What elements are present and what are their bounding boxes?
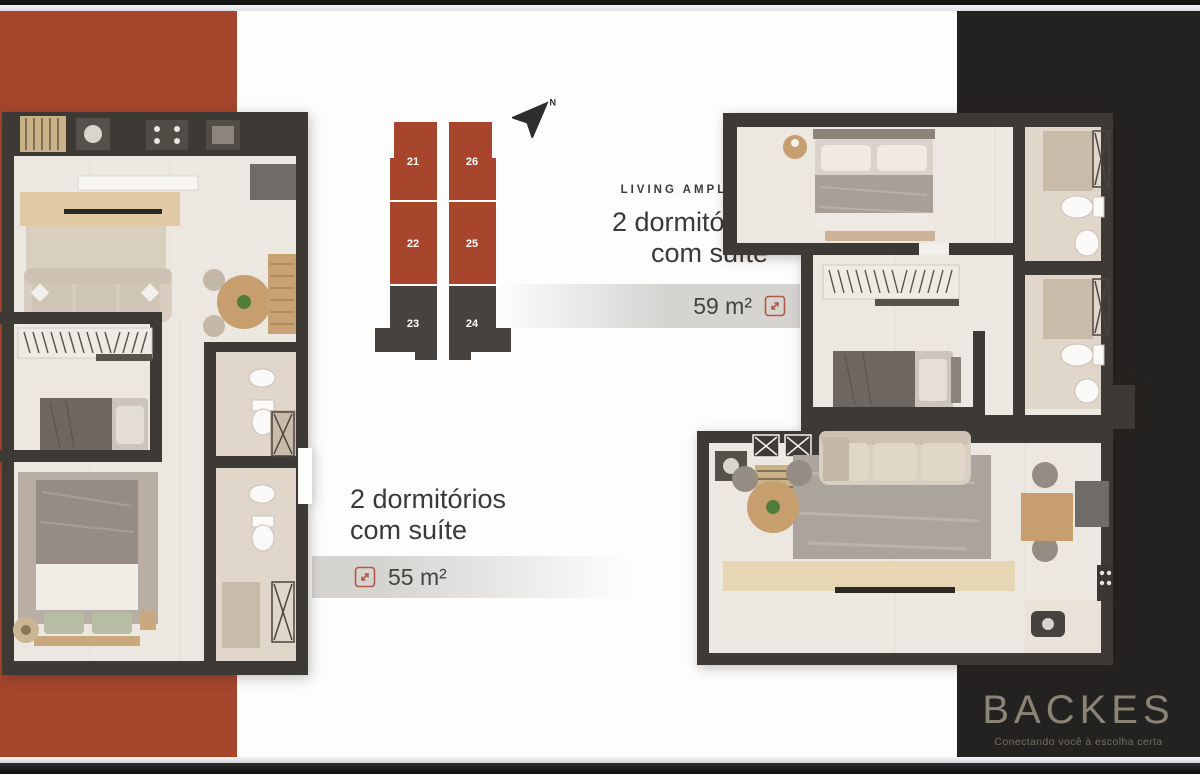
- brand-block: BACKES Conectando você à escolha certa: [957, 690, 1200, 748]
- plan55-title-line2: com suíte: [350, 515, 590, 546]
- plan55-area-bar: 55 m²: [312, 556, 657, 598]
- frame-bottom-bar: [0, 763, 1200, 774]
- floor-plan-55-svg: [0, 112, 312, 675]
- keyplan-unit-label: 23: [407, 318, 419, 330]
- plan55-bathrooms: [216, 352, 296, 661]
- plan55-bedroom2: [40, 398, 148, 452]
- brochure-canvas: 21 22 23 26 25 24 N LIVING AMPLIADO 2 do…: [0, 0, 1200, 774]
- keyplan-unit-label: 25: [466, 238, 478, 250]
- plan55-area-value: 55 m²: [388, 564, 447, 591]
- keyplan-unit-24: [449, 286, 511, 352]
- frame-top-strip: [0, 5, 1200, 11]
- plan55-master-bedroom: [13, 472, 158, 646]
- floor-plan-59-svg: [695, 113, 1135, 666]
- brand-tagline: Conectando você à escolha certa: [957, 736, 1200, 748]
- keyplan-unit-label: 26: [466, 156, 478, 168]
- plan59-bedroom2: [833, 351, 961, 409]
- plan55-title-line1: 2 dormitórios: [350, 484, 590, 515]
- brand-logo: BACKES: [957, 690, 1200, 730]
- plan55-closet: [18, 328, 152, 361]
- keyplan-unit-label: 24: [466, 318, 479, 330]
- expand-icon: [354, 566, 376, 588]
- north-arrow-icon: N: [512, 94, 556, 138]
- plan55-text-block: 2 dormitórios com suíte: [350, 484, 590, 547]
- north-label: N: [550, 98, 556, 108]
- keyplan-unit-label: 22: [407, 238, 419, 250]
- keyplan-unit-label: 21: [407, 156, 419, 168]
- keyplan-column-right: [449, 122, 511, 360]
